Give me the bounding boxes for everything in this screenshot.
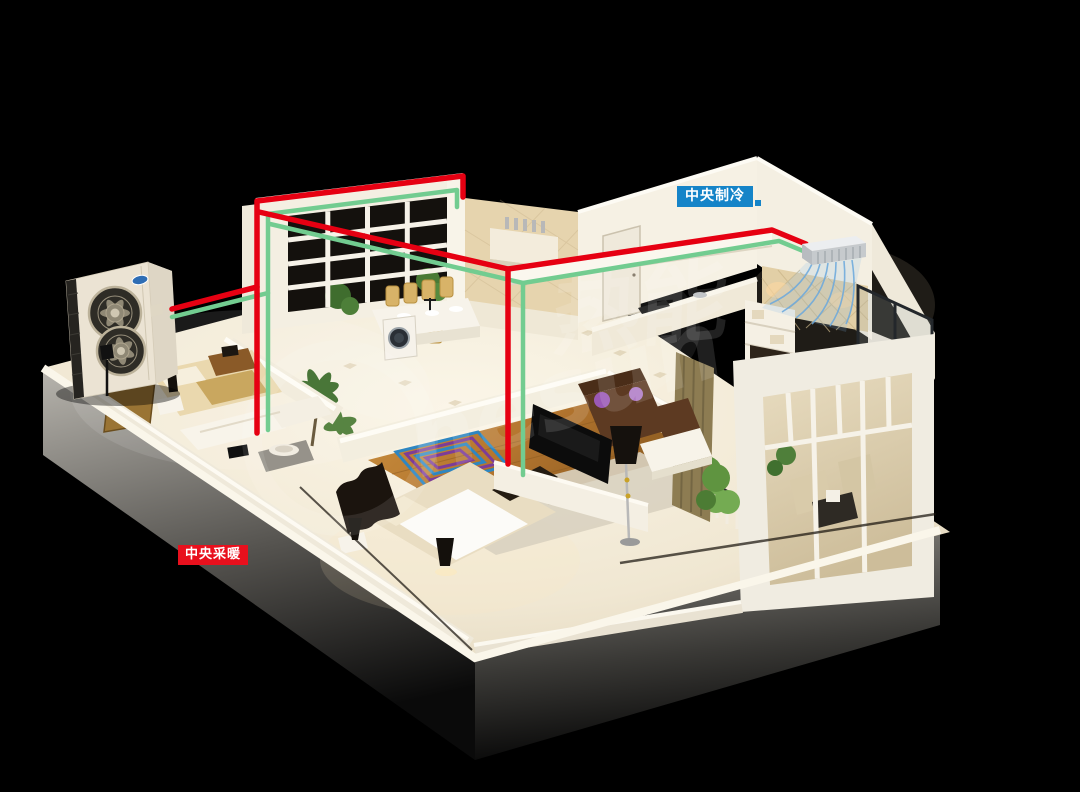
central-cooling-label: 中央制冷 <box>677 186 753 207</box>
central-cooling-label-text: 中央制冷 <box>685 188 745 204</box>
central-heating-label-text: 中央采暖 <box>185 547 241 562</box>
hvac-3d-apartment-render: 热能 nesun 中央制冷 中央采暖 <box>0 0 1080 792</box>
isometric-house-cutaway: 热能 nesun <box>0 0 1080 792</box>
cooling-label-tail <box>755 200 761 206</box>
central-heating-label: 中央采暖 <box>178 545 248 565</box>
